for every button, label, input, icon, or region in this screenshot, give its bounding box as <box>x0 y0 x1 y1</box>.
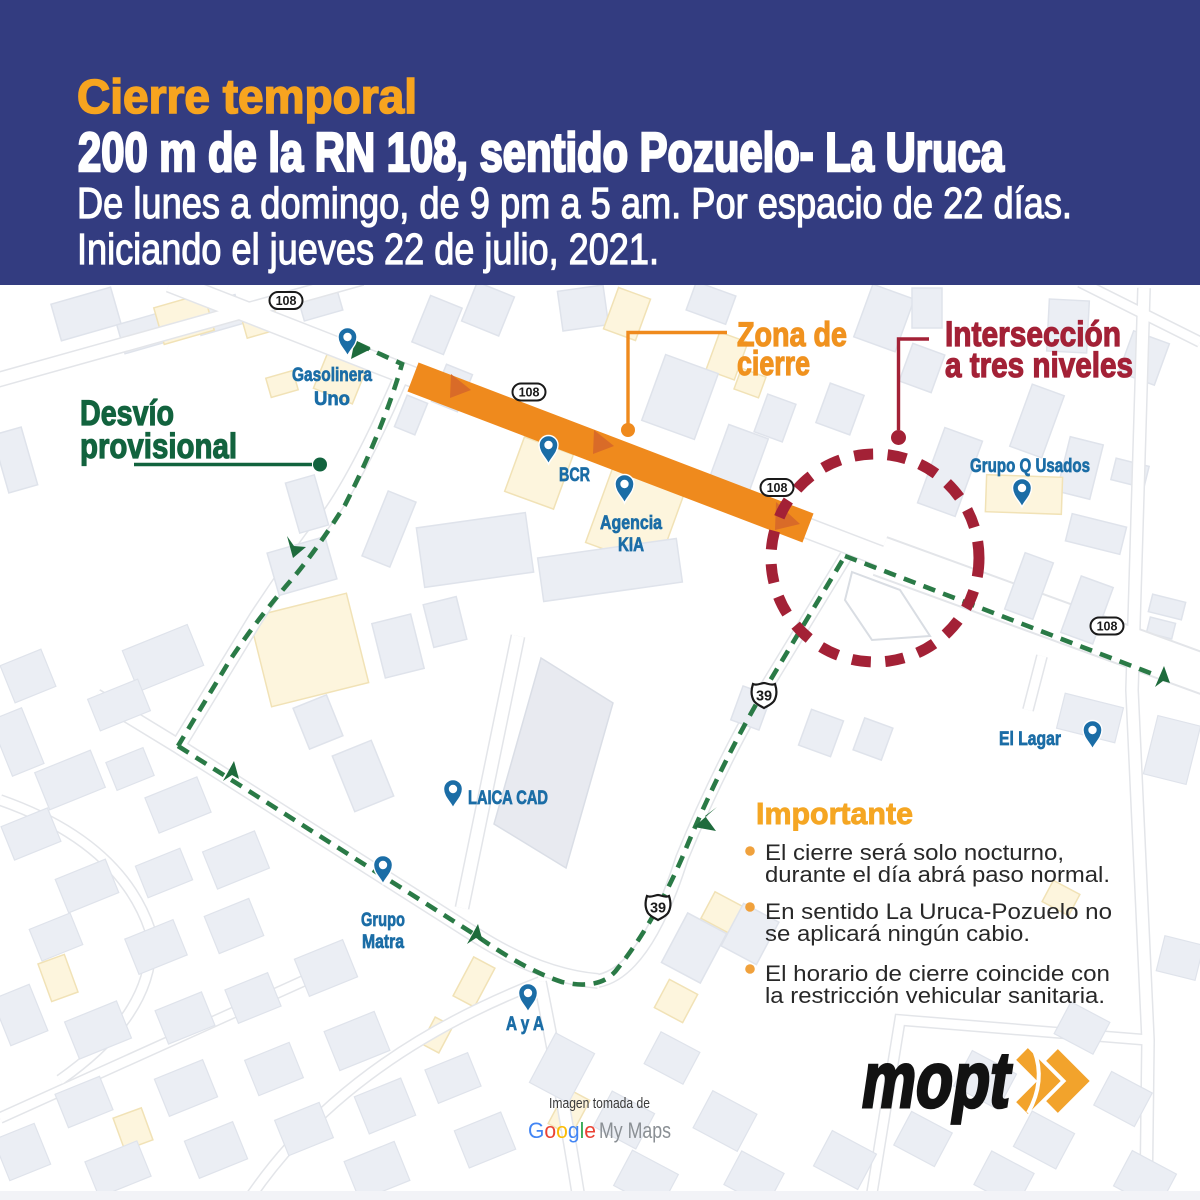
svg-text:BCR: BCR <box>559 464 590 486</box>
svg-text:KIA: KIA <box>618 534 644 556</box>
svg-text:cierre: cierre <box>737 345 810 383</box>
svg-text:Gasolinera: Gasolinera <box>292 364 372 386</box>
svg-text:mopt: mopt <box>856 1035 1017 1124</box>
svg-text:Importante: Importante <box>756 796 913 831</box>
svg-text:Cierre temporal: Cierre temporal <box>77 71 417 124</box>
svg-text:My Maps: My Maps <box>599 1118 671 1143</box>
svg-text:a tres niveles: a tres niveles <box>945 346 1133 385</box>
svg-text:se aplicará ningún cabio.: se aplicará ningún cabio. <box>765 921 1030 946</box>
svg-text:A y A: A y A <box>506 1013 544 1035</box>
svg-text:LAICA CAD: LAICA CAD <box>468 787 548 809</box>
svg-text:Uno: Uno <box>314 388 350 410</box>
svg-text:Agencia: Agencia <box>600 512 662 534</box>
svg-text:Grupo: Grupo <box>361 909 405 931</box>
svg-text:El Lagar: El Lagar <box>999 728 1061 750</box>
svg-text:la restricción vehicular sanit: la restricción vehicular sanitaria. <box>765 983 1105 1008</box>
svg-text:Matra: Matra <box>362 931 404 953</box>
svg-text:De lunes a domingo, de 9 pm a: De lunes a domingo, de 9 pm a 5 am. Por … <box>77 179 1072 228</box>
svg-text:200 m de la RN 108, sentido Po: 200 m de la RN 108, sentido Pozuelo- La … <box>78 121 1004 183</box>
svg-text:Google: Google <box>528 1118 596 1143</box>
svg-text:Grupo Q Usados: Grupo Q Usados <box>970 455 1090 477</box>
svg-text:provisional: provisional <box>80 426 237 466</box>
svg-text:Imagen tomada de: Imagen tomada de <box>549 1096 650 1112</box>
svg-text:durante el día abrá paso norma: durante el día abrá paso normal. <box>765 862 1110 887</box>
svg-text:Iniciando el jueves 22 de juli: Iniciando el jueves 22 de julio, 2021. <box>77 225 659 274</box>
